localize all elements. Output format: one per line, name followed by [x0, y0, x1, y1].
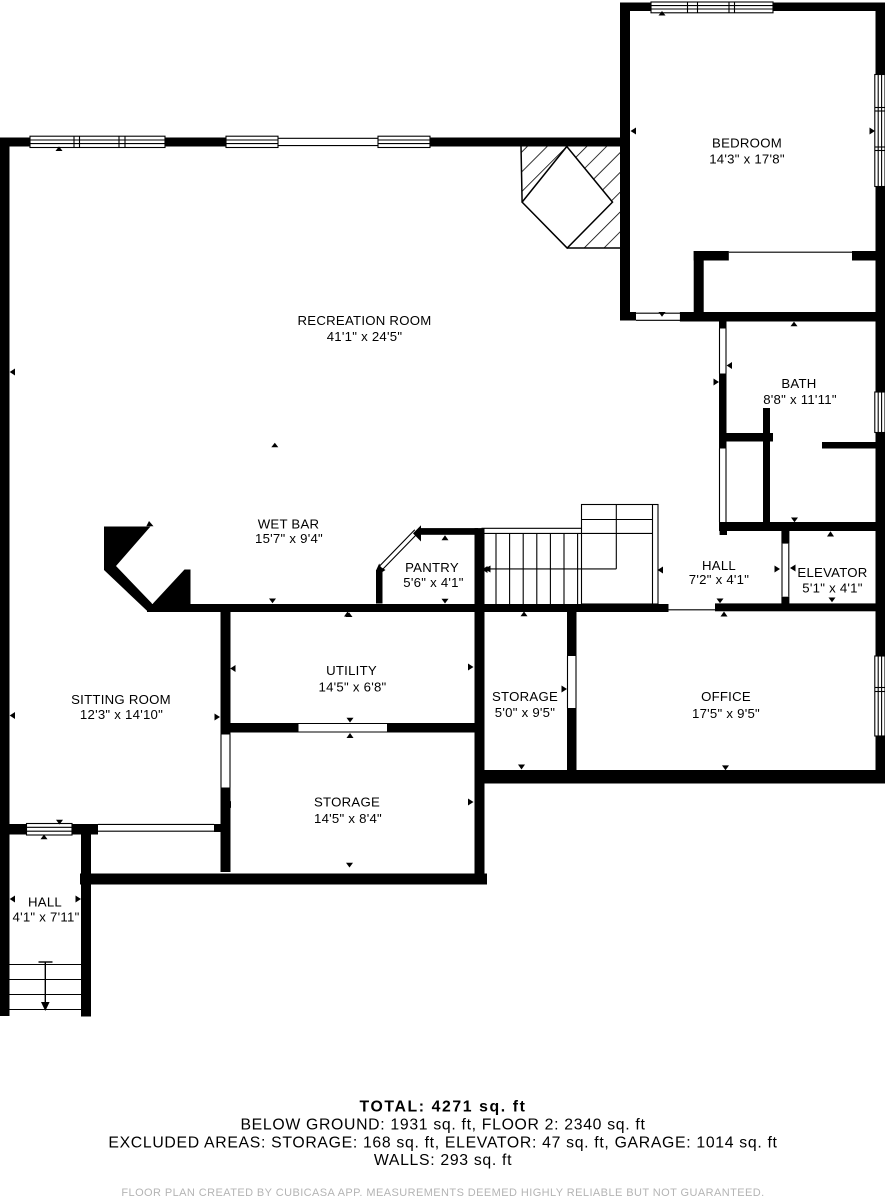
svg-text:41'1" x 24'5": 41'1" x 24'5" [327, 329, 403, 344]
svg-text:PANTRY: PANTRY [405, 560, 459, 575]
svg-text:14'5" x 8'4": 14'5" x 8'4" [314, 811, 382, 826]
svg-text:BELOW GROUND: 1931 sq. ft, FLO: BELOW GROUND: 1931 sq. ft, FLOOR 2: 2340… [240, 1117, 645, 1134]
svg-text:5'0" x 9'5": 5'0" x 9'5" [495, 705, 555, 720]
svg-text:UTILITY: UTILITY [326, 663, 377, 678]
svg-text:BATH: BATH [781, 376, 816, 391]
svg-text:4'1" x 7'11": 4'1" x 7'11" [12, 910, 79, 925]
svg-text:15'7" x 9'4": 15'7" x 9'4" [255, 531, 323, 546]
svg-text:WALLS: 293 sq. ft: WALLS: 293 sq. ft [374, 1152, 512, 1169]
svg-text:HALL: HALL [702, 558, 736, 573]
svg-text:8'8" x 11'11": 8'8" x 11'11" [763, 392, 837, 407]
svg-text:RECREATION ROOM: RECREATION ROOM [298, 313, 432, 328]
svg-text:5'1" x 4'1": 5'1" x 4'1" [802, 581, 862, 596]
svg-text:WET BAR: WET BAR [258, 517, 320, 532]
svg-text:12'3" x 14'10": 12'3" x 14'10" [80, 707, 163, 722]
svg-text:HALL: HALL [28, 895, 62, 910]
svg-text:5'6" x 4'1": 5'6" x 4'1" [403, 575, 463, 590]
svg-text:7'2" x 4'1": 7'2" x 4'1" [689, 572, 749, 587]
svg-text:TOTAL: 4271 sq. ft: TOTAL: 4271 sq. ft [360, 1099, 527, 1116]
svg-text:ELEVATOR: ELEVATOR [797, 565, 867, 580]
svg-text:BEDROOM: BEDROOM [712, 136, 782, 151]
svg-text:STORAGE: STORAGE [492, 689, 558, 704]
svg-text:FLOOR PLAN CREATED BY CUBICASA: FLOOR PLAN CREATED BY CUBICASA APP. MEAS… [121, 1187, 764, 1199]
svg-text:17'5" x 9'5": 17'5" x 9'5" [692, 706, 760, 721]
svg-text:SITTING ROOM: SITTING ROOM [71, 692, 171, 707]
svg-text:STORAGE: STORAGE [314, 795, 380, 810]
svg-text:14'5" x 6'8": 14'5" x 6'8" [319, 680, 387, 695]
svg-text:OFFICE: OFFICE [701, 689, 751, 704]
svg-text:14'3" x 17'8": 14'3" x 17'8" [709, 152, 785, 167]
svg-text:EXCLUDED AREAS: STORAGE: 168 s: EXCLUDED AREAS: STORAGE: 168 sq. ft, ELE… [108, 1135, 777, 1152]
